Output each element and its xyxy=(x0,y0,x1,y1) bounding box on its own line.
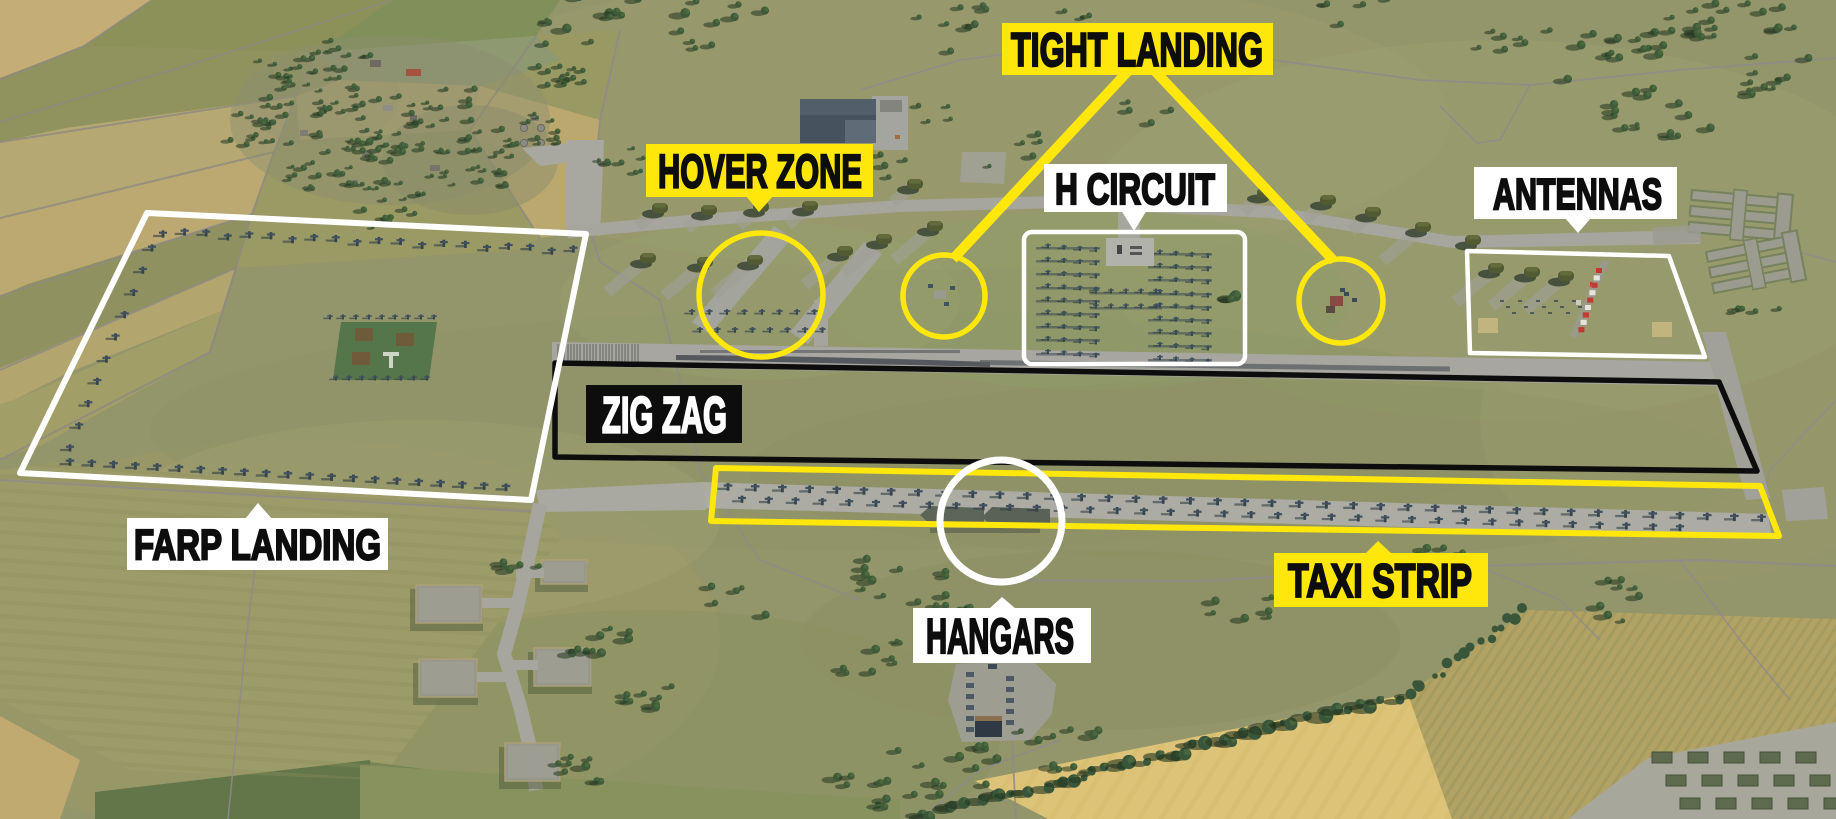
svg-text:HANGARS: HANGARS xyxy=(926,610,1074,664)
svg-text:H CIRCUIT: H CIRCUIT xyxy=(1055,165,1215,214)
svg-text:HOVER ZONE: HOVER ZONE xyxy=(658,144,862,197)
svg-text:TIGHT LANDING: TIGHT LANDING xyxy=(1011,23,1263,76)
svg-text:FARP LANDING: FARP LANDING xyxy=(134,522,381,570)
svg-text:TAXI STRIP: TAXI STRIP xyxy=(1288,554,1472,607)
svg-text:ANTENNAS: ANTENNAS xyxy=(1493,170,1662,219)
svg-text:ZIG ZAG: ZIG ZAG xyxy=(602,386,727,443)
